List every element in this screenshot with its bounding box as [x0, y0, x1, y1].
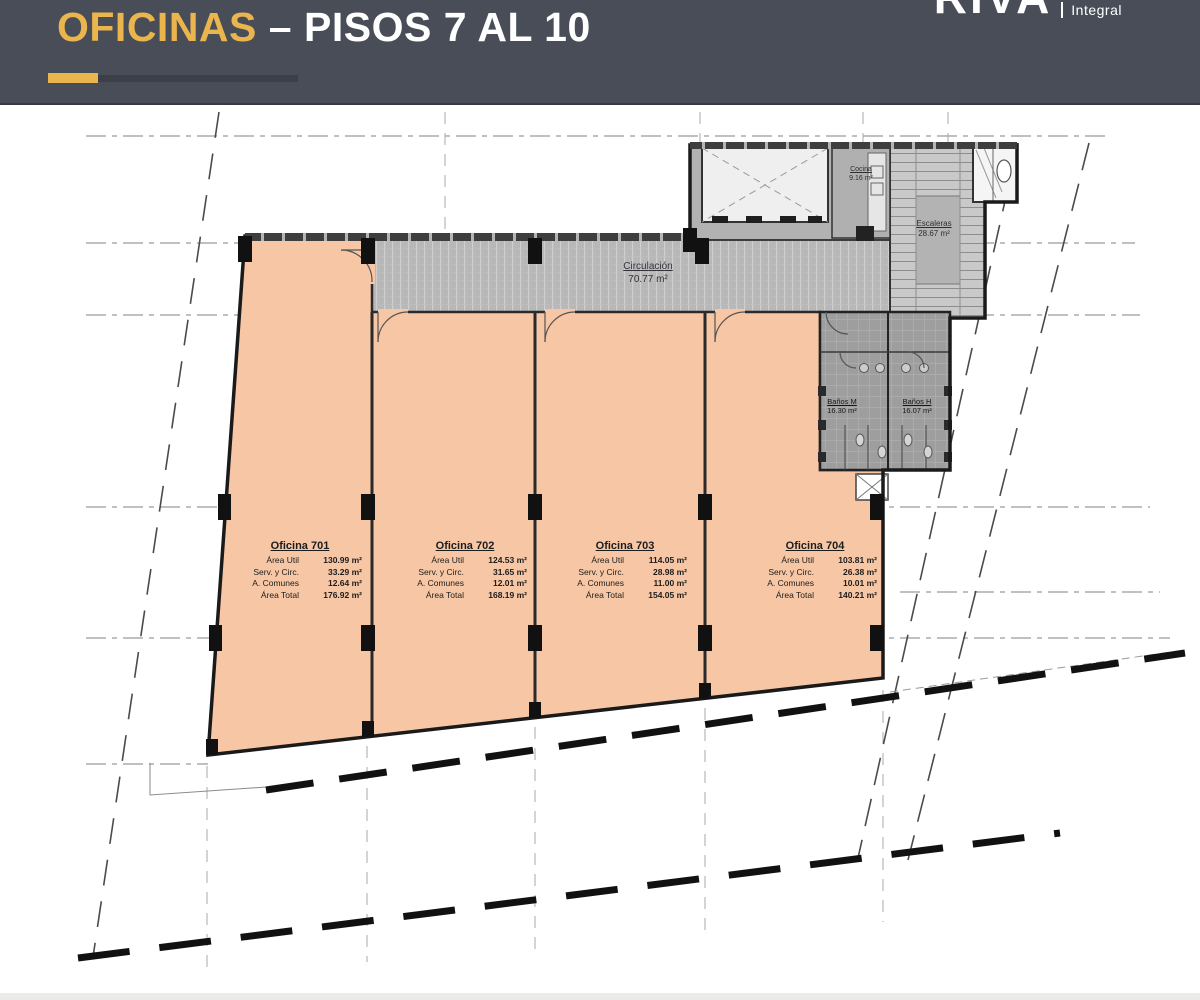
kitchen-region: [832, 148, 890, 241]
bathroom-h-label: Baños H 16.07 m²: [888, 397, 946, 416]
bathroom-m-label: Baños M 16.30 m²: [813, 397, 871, 416]
office-702-row-total: Área Total168.19 m²: [403, 590, 527, 602]
office-703-row-total: Área Total154.05 m²: [563, 590, 687, 602]
office-703-label: Oficina 703 Área Util114.05 m² Serv. y C…: [563, 540, 687, 601]
page-title-rest: – PISOS 7 AL 10: [257, 4, 591, 50]
office-703-row-serv: Serv. y Circ.28.98 m²: [563, 567, 687, 579]
facade-window-band: [245, 233, 690, 241]
elevator-shaft: [702, 148, 828, 223]
wc-room: [973, 145, 1017, 202]
office-704-row-total: Área Total140.21 m²: [753, 590, 877, 602]
header-bar: OFICINAS – PISOS 7 AL 10 RIVA Integral: [0, 0, 1200, 105]
office-701-row-serv: Serv. y Circ.33.29 m²: [238, 567, 362, 579]
bathrooms-region: [818, 312, 952, 470]
page-title-highlight: OFICINAS: [57, 4, 257, 50]
office-704-row-serv: Serv. y Circ.26.38 m²: [753, 567, 877, 579]
slide-page: OFICINAS – PISOS 7 AL 10 RIVA Integral C…: [0, 0, 1200, 1000]
floor-plan-svg: [0, 0, 1200, 1000]
stairs-label: Escaleras 28.67 m²: [898, 219, 970, 239]
riva-logo: RIVA Integral: [934, 0, 1122, 20]
office-702-label: Oficina 702 Área Util124.53 m² Serv. y C…: [403, 540, 527, 601]
office-703-row-comunes: A. Comunes11.00 m²: [563, 578, 687, 590]
office-702-row-serv: Serv. y Circ.31.65 m²: [403, 567, 527, 579]
office-701-row-total: Área Total176.92 m²: [238, 590, 362, 602]
riva-logo-wordmark: RIVA: [934, 0, 1053, 20]
office-702-row-util: Área Util124.53 m²: [403, 555, 527, 567]
circulation-label: Circulación 70.77 m²: [598, 261, 698, 286]
office-704-label: Oficina 704 Área Util103.81 m² Serv. y C…: [753, 540, 877, 601]
office-702-row-comunes: A. Comunes12.01 m²: [403, 578, 527, 590]
office-701-label: Oficina 701 Área Util130.99 m² Serv. y C…: [238, 540, 362, 601]
office-704-row-util: Área Util103.81 m²: [753, 555, 877, 567]
office-701-row-comunes: A. Comunes12.64 m²: [238, 578, 362, 590]
office-703-row-util: Área Util114.05 m²: [563, 555, 687, 567]
page-title: OFICINAS – PISOS 7 AL 10: [57, 4, 591, 51]
office-701-row-util: Área Util130.99 m²: [238, 555, 362, 567]
kitchen-label: Cocina 9.16 m²: [835, 166, 887, 184]
title-underline-gray: [98, 75, 298, 82]
riva-logo-tagline: Integral: [1061, 2, 1122, 18]
office-704-row-comunes: A. Comunes10.01 m²: [753, 578, 877, 590]
core-facade-band: [690, 142, 1017, 149]
footer-strip: [0, 993, 1200, 1000]
title-underline-gold: [48, 73, 98, 83]
